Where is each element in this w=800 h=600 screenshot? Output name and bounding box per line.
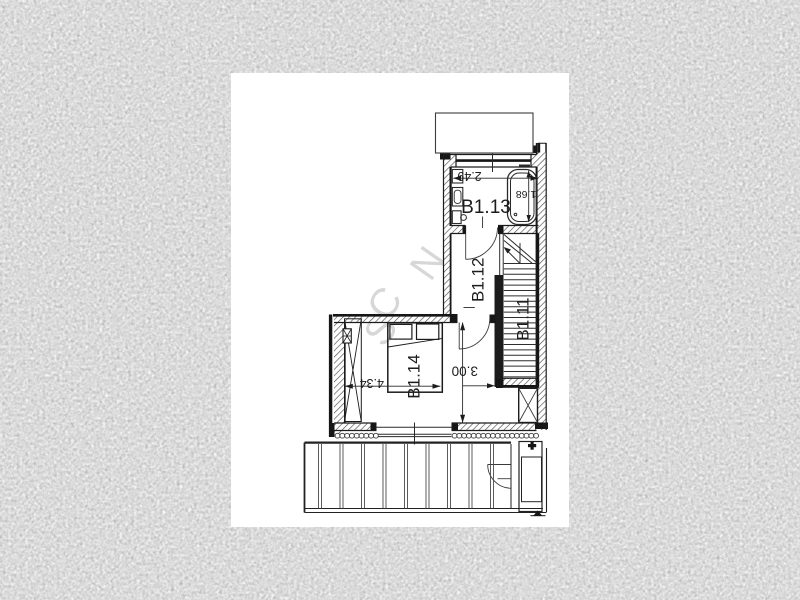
svg-text:1.68: 1.68 bbox=[516, 188, 537, 200]
svg-text:B1.11: B1.11 bbox=[514, 297, 533, 340]
svg-text:B1.13: B1.13 bbox=[461, 197, 511, 218]
svg-text:2.49: 2.49 bbox=[457, 169, 481, 183]
svg-text:4.34: 4.34 bbox=[360, 376, 384, 390]
svg-text:B1.12: B1.12 bbox=[469, 258, 488, 302]
svg-text:B1.14: B1.14 bbox=[405, 354, 424, 398]
svg-text:3.00: 3.00 bbox=[452, 364, 478, 379]
